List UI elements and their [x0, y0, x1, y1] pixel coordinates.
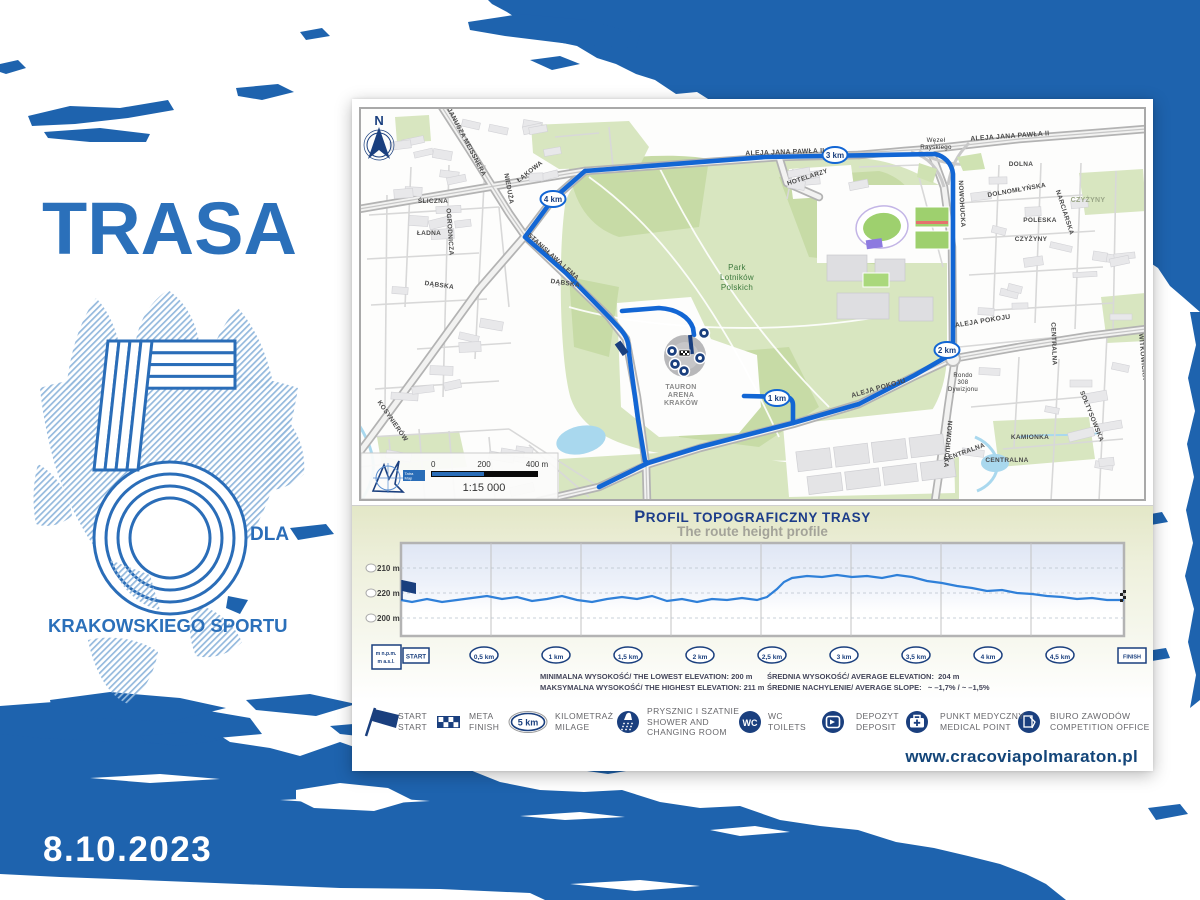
- svg-text:DLA: DLA: [250, 524, 289, 545]
- svg-text:WC: WC: [743, 718, 758, 728]
- svg-text:5 km: 5 km: [518, 718, 539, 728]
